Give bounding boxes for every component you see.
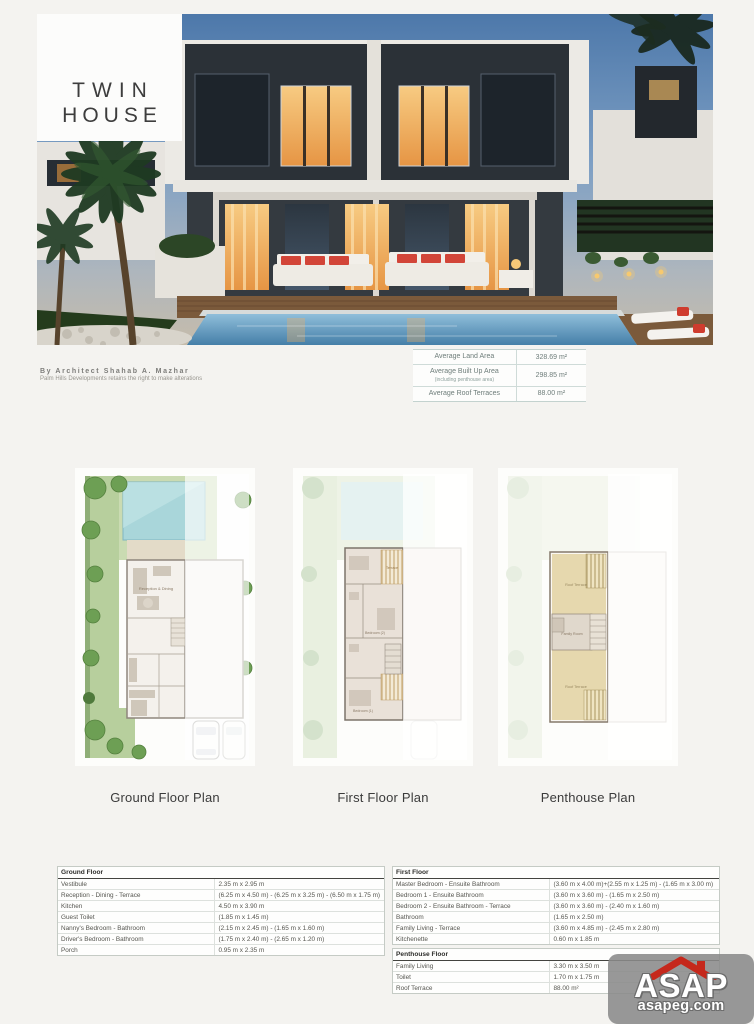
- table-row: Master Bedroom - Ensuite Bathroom (3.60 …: [393, 879, 719, 890]
- area-value: 298.85 m²: [517, 370, 586, 381]
- table-row: Vestibule 2.35 m x 2.95 m: [58, 879, 384, 890]
- room-label: Toilet: [393, 972, 549, 982]
- area-summary-table: Average Land Area 328.69 m² Average Buil…: [413, 349, 586, 402]
- reception-dining-label: Reception & Dining: [139, 586, 173, 591]
- asap-watermark: ASAP asapeg.com: [608, 954, 754, 1024]
- table-row: Kitchenette 0.60 m x 1.85 m: [393, 934, 719, 944]
- room-dimensions: (3.60 m x 4.85 m) - (2.45 m x 2.80 m): [549, 923, 719, 933]
- table-header: First Floor: [393, 867, 719, 879]
- table-row: Average Roof Terraces 88.00 m²: [413, 387, 586, 401]
- architect-name: By Architect Shahab A. Mazhar: [40, 368, 202, 375]
- room-label: Vestibule: [58, 879, 214, 889]
- table-row: Family Living - Terrace (3.60 m x 4.85 m…: [393, 923, 719, 934]
- room-dimensions: (3.60 m x 3.60 m) - (2.40 m x 1.60 m): [549, 901, 719, 911]
- room-label: Roof Terrace: [393, 983, 549, 993]
- ground-floor-dimensions-table: Ground Floor Vestibule 2.35 m x 2.95 m R…: [57, 866, 385, 956]
- table-row: Nanny's Bedroom - Bathroom (2.15 m x 2.4…: [58, 923, 384, 934]
- room-dimensions: (2.15 m x 2.45 m) - (1.65 m x 1.60 m): [214, 923, 384, 933]
- room-dimensions: (1.65 m x 2.50 m): [549, 912, 719, 922]
- area-value: 88.00 m²: [517, 388, 586, 399]
- room-label: Driver's Bedroom - Bathroom: [58, 934, 214, 944]
- roof-terrace-bottom-label: Roof Terrace: [565, 685, 587, 689]
- area-label-sub: (including penthouse area): [415, 377, 514, 383]
- room-label: Kitchen: [58, 901, 214, 911]
- penthouse-plan-caption: Penthouse Plan: [498, 790, 678, 805]
- room-label: Bedroom 1 - Ensuite Bathroom: [393, 890, 549, 900]
- room-dimensions: (3.60 m x 3.60 m) - (1.65 m x 2.50 m): [549, 890, 719, 900]
- table-row: Bathroom (1.65 m x 2.50 m): [393, 912, 719, 923]
- area-label-main: Average Built Up Area: [430, 368, 499, 375]
- room-dimensions: 2.35 m x 2.95 m: [214, 879, 384, 889]
- table-row: Average Built Up Area (including penthou…: [413, 365, 586, 386]
- area-label: Average Built Up Area (including penthou…: [413, 365, 517, 385]
- area-label: Average Land Area: [413, 350, 517, 364]
- table-row: Guest Toilet (1.85 m x 1.45 m): [58, 912, 384, 923]
- room-label: Nanny's Bedroom - Bathroom: [58, 923, 214, 933]
- table-row: Driver's Bedroom - Bathroom (1.75 m x 2.…: [58, 934, 384, 945]
- room-label: Family Living: [393, 961, 549, 971]
- brochure-page: TWIN HOUSE By Architect Shahab A. Mazhar…: [0, 0, 754, 1024]
- developer-disclaimer: Palm Hills Developments retains the righ…: [40, 376, 202, 382]
- first-floor-plan-caption: First Floor Plan: [293, 790, 473, 805]
- room-label: Porch: [58, 945, 214, 955]
- ground-floor-plan-caption: Ground Floor Plan: [75, 790, 255, 805]
- watermark-domain: asapeg.com: [638, 998, 725, 1014]
- first-floor-plan: Terrace Bedroom (2) Bedroom (1): [293, 468, 473, 766]
- room-label: Guest Toilet: [58, 912, 214, 922]
- room-dimensions: (1.85 m x 1.45 m): [214, 912, 384, 922]
- room-label: Reception - Dining - Terrace: [58, 890, 214, 900]
- table-row: Bedroom 2 - Ensuite Bathroom - Terrace (…: [393, 901, 719, 912]
- architect-credit: By Architect Shahab A. Mazhar Palm Hills…: [40, 368, 202, 382]
- room-label: Master Bedroom - Ensuite Bathroom: [393, 879, 549, 889]
- bedroom2-label: Bedroom (2): [365, 631, 385, 635]
- room-label: Kitchenette: [393, 934, 549, 944]
- table-row: Kitchen 4.50 m x 3.90 m: [58, 901, 384, 912]
- penthouse-plan: Roof Terrace Family Room Roof Terrace: [498, 468, 678, 766]
- room-label: Family Living - Terrace: [393, 923, 549, 933]
- table-row: Bedroom 1 - Ensuite Bathroom (3.60 m x 3…: [393, 890, 719, 901]
- first-floor-dimensions-table: First Floor Master Bedroom - Ensuite Bat…: [392, 866, 720, 945]
- title-box: TWIN HOUSE: [37, 14, 182, 141]
- area-label: Average Roof Terraces: [413, 387, 517, 401]
- watermark-brand-name: ASAP: [634, 972, 728, 1000]
- area-value: 328.69 m²: [517, 352, 586, 363]
- family-room-label: Family Room: [561, 632, 582, 636]
- room-dimensions: (6.25 m x 4.50 m) - (6.25 m x 3.25 m) - …: [214, 890, 384, 900]
- room-dimensions: 0.60 m x 1.85 m: [549, 934, 719, 944]
- room-label: Bedroom 2 - Ensuite Bathroom - Terrace: [393, 901, 549, 911]
- ground-floor-plan: Reception & Dining: [75, 468, 255, 766]
- table-row: Average Land Area 328.69 m²: [413, 350, 586, 365]
- room-dimensions: 0.95 m x 2.35 m: [214, 945, 384, 955]
- page-title-line1: TWIN: [65, 79, 154, 104]
- roof-terrace-top-label: Roof Terrace: [565, 583, 587, 587]
- table-header: Ground Floor: [58, 867, 384, 879]
- terrace-label: Terrace: [386, 566, 398, 570]
- bedroom1-label: Bedroom (1): [353, 709, 373, 713]
- table-row: Porch 0.95 m x 2.35 m: [58, 945, 384, 955]
- room-dimensions: (1.75 m x 2.40 m) - (2.65 m x 1.20 m): [214, 934, 384, 944]
- room-dimensions: 4.50 m x 3.90 m: [214, 901, 384, 911]
- page-title-line2: HOUSE: [57, 104, 162, 129]
- room-dimensions: (3.60 m x 4.00 m)+(2.55 m x 1.25 m) - (1…: [549, 879, 719, 889]
- room-label: Bathroom: [393, 912, 549, 922]
- table-row: Reception - Dining - Terrace (6.25 m x 4…: [58, 890, 384, 901]
